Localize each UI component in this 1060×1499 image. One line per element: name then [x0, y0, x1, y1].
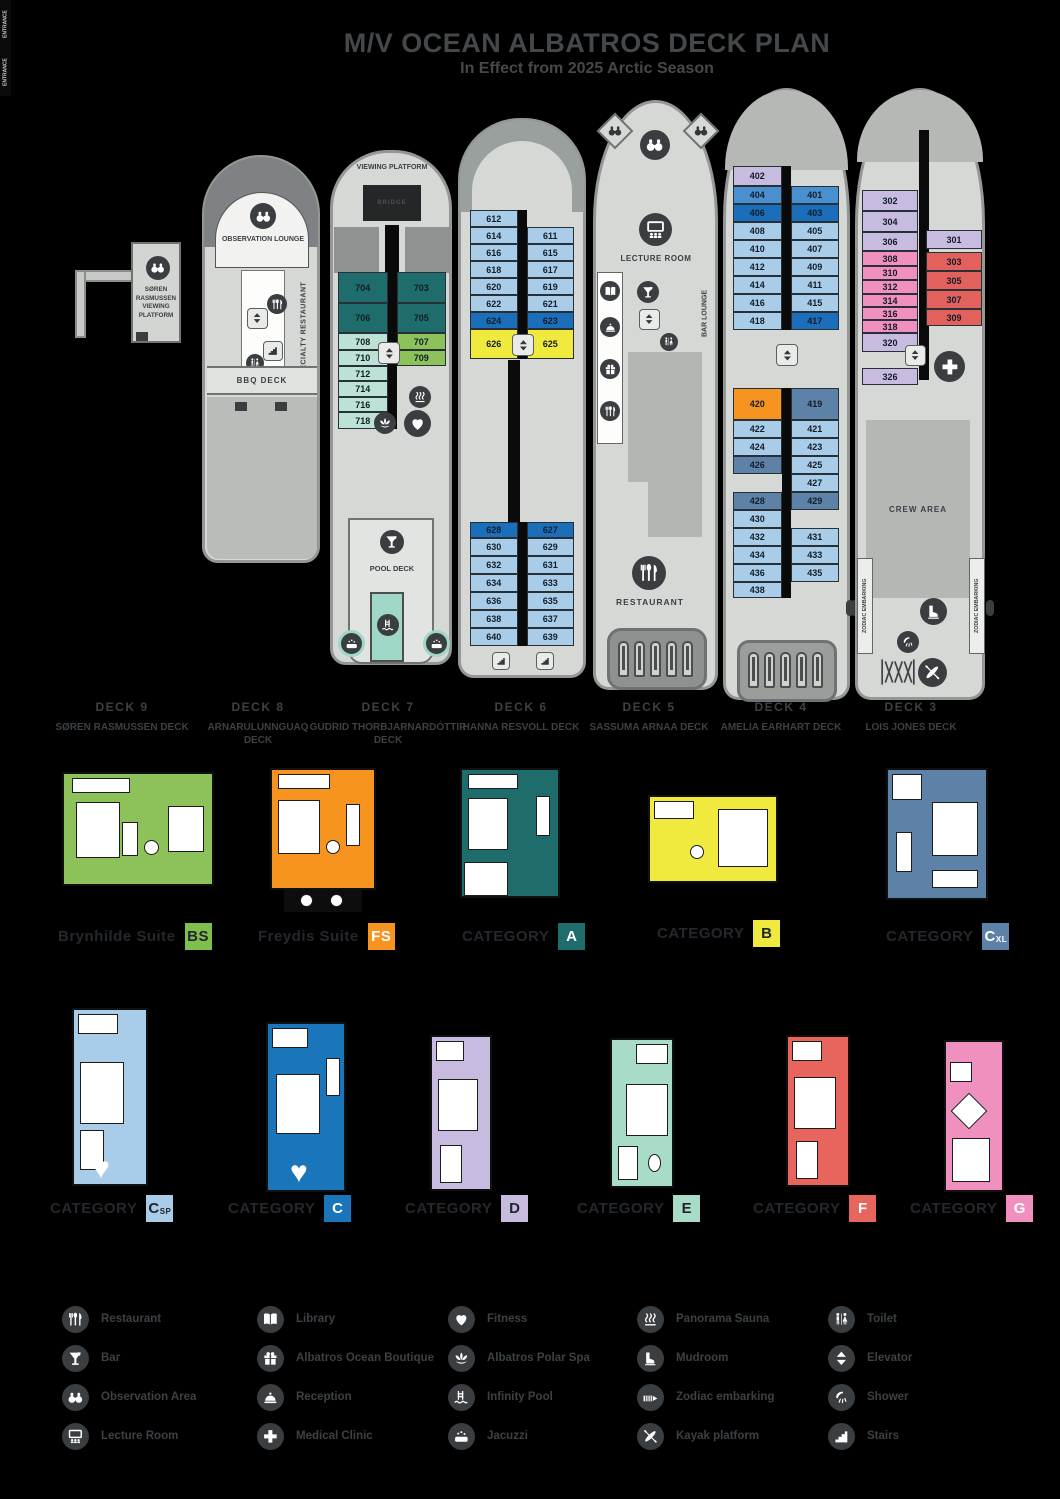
shower-icon: [897, 631, 919, 653]
legend-item-lecture: Lecture Room: [62, 1417, 196, 1456]
plan-brynhilde-suite: [62, 772, 214, 886]
cabin-706: 706: [338, 303, 388, 333]
elevator-icon: [905, 345, 926, 366]
corridor: [782, 528, 791, 546]
legend-item-sauna: Panorama Sauna: [637, 1300, 774, 1339]
legend-item-fitness: Fitness: [448, 1300, 590, 1339]
corridor: [782, 510, 791, 528]
cabin-row: 410407: [733, 240, 839, 258]
deck7-shoulder-left: [334, 227, 379, 273]
corridor: [782, 420, 791, 438]
gap: [926, 190, 982, 230]
cabin-314: 314: [862, 294, 918, 307]
cabin-row: 616615: [470, 244, 574, 261]
cabin-row: 406403: [733, 204, 839, 222]
legend-label: Bar: [101, 1352, 120, 1366]
legend-item-observation: Observation Area: [62, 1378, 196, 1417]
cabin-302: 302: [862, 190, 918, 211]
cabin-433: 433: [791, 546, 840, 564]
entrance-label: ENTRANCE: [0, 48, 11, 96]
legend-label: Panorama Sauna: [676, 1313, 769, 1327]
cabin-316: 316: [862, 307, 918, 320]
cabin-row: 706705: [338, 303, 446, 333]
cabin-423: 423: [791, 438, 840, 456]
badge-f: F: [849, 1195, 876, 1222]
corridor: [518, 210, 527, 227]
pool-icon: [448, 1384, 475, 1411]
cabin-633: 633: [527, 574, 575, 592]
category-e: CATEGORY E: [577, 1194, 700, 1222]
legend-label: Infinity Pool: [487, 1391, 553, 1405]
entrance-label: ENTRANCE: [0, 0, 11, 48]
boutique-icon: [257, 1345, 284, 1372]
toilet-icon: [828, 1306, 855, 1333]
deck7-pool: [370, 592, 404, 662]
category-d: CATEGORY D: [405, 1194, 528, 1222]
corridor: [388, 366, 397, 381]
corridor: [782, 456, 791, 474]
mudroom-icon: [637, 1345, 664, 1372]
legend-label: Shower: [867, 1391, 909, 1405]
cabin-615: 615: [527, 244, 575, 261]
cabin-709: 709: [397, 350, 447, 366]
restaurant-icon: [267, 294, 287, 314]
corridor: [518, 592, 527, 610]
cabin-row: 636635: [470, 592, 574, 610]
jacuzzi-icon: [448, 1423, 475, 1450]
library-icon: [600, 281, 620, 301]
cabin-403: 403: [791, 204, 840, 222]
cabin-304: 304: [862, 211, 918, 232]
cabin-712: 712: [338, 366, 388, 381]
pool-deck-label: POOL DECK: [358, 564, 426, 575]
badge-cxl: CXL: [982, 923, 1009, 950]
deck9-walkway-leg: [75, 270, 86, 338]
legend-item-shower: Shower: [828, 1378, 912, 1417]
plan-category-cxl: [886, 768, 988, 900]
corridor: [782, 546, 791, 564]
bar-icon: [62, 1345, 89, 1372]
cabin-619: 619: [527, 278, 575, 295]
corridor: [388, 272, 397, 303]
bridge-label: BRIDGE: [377, 200, 406, 206]
badge-csp: CSP: [146, 1195, 173, 1222]
zodiac-embarking-label: ZODIAC EMBARKING: [857, 558, 873, 654]
badge-e: E: [673, 1195, 700, 1222]
zodiac-boats: [618, 641, 693, 677]
legend-label: Albatros Polar Spa: [487, 1352, 590, 1366]
plan-category-b: [648, 795, 778, 883]
plan-category-a: [460, 768, 560, 898]
cabin-703: 703: [397, 272, 447, 303]
legend-item-jacuzzi: Jacuzzi: [448, 1417, 590, 1456]
restaurant-icon: [62, 1306, 89, 1333]
legend-item-pool: Infinity Pool: [448, 1378, 590, 1417]
badge-bs: BS: [185, 923, 212, 950]
corridor: [782, 204, 791, 222]
cabin-row: 436435: [733, 564, 839, 582]
deck6-corridor: [508, 360, 520, 522]
legend-item-mudroom: Mudroom: [637, 1339, 774, 1378]
cabin-326: 326: [862, 368, 918, 385]
elevator-icon: [828, 1345, 855, 1372]
cabin-714: 714: [338, 381, 388, 397]
deck9-stairs-tab: [136, 332, 148, 341]
cabin-row: 402: [733, 166, 839, 186]
cabin-624: 624: [470, 312, 518, 329]
legend-item-zodiac: Zodiac embarking: [637, 1378, 774, 1417]
legend-item-bar: Bar: [62, 1339, 196, 1378]
observation-icon: [640, 130, 670, 160]
stairs-icon: [263, 341, 283, 361]
deck8-stairs-tab: [235, 402, 247, 411]
legend-label: Reception: [296, 1391, 352, 1405]
spa-icon: [448, 1345, 475, 1372]
cabin-row: 404401: [733, 186, 839, 204]
cabin-716: 716: [338, 397, 388, 412]
bbq-deck-label: BBQ DECK: [237, 376, 288, 385]
cabin-303: 303: [926, 252, 982, 271]
cabin-422: 422: [733, 420, 782, 438]
elevator-icon: [512, 334, 534, 356]
cabin-412: 412: [733, 258, 782, 276]
legend-label: Mudroom: [676, 1352, 728, 1366]
shower-icon: [828, 1384, 855, 1411]
cabin-421: 421: [791, 420, 840, 438]
spa-icon: [374, 412, 396, 434]
cabin-307: 307: [926, 290, 982, 309]
legend-label: Lecture Room: [101, 1430, 178, 1444]
cabin-635: 635: [527, 592, 575, 610]
legend-column-2: LibraryAlbatros Ocean BoutiqueReceptionM…: [257, 1300, 434, 1456]
cabin-417: 417: [791, 312, 840, 330]
restaurant-icon: [632, 556, 666, 590]
deck3-crew-area: CREW AREA: [866, 420, 970, 598]
legend-label: Elevator: [867, 1352, 912, 1366]
cabin-row: 614611: [470, 227, 574, 244]
cabin-row: 638637: [470, 610, 574, 628]
corridor: [518, 244, 527, 261]
legend-label: Kayak platform: [676, 1430, 759, 1444]
cabin-634: 634: [470, 574, 518, 592]
legend-column-5: ToiletElevatorShowerStairs: [828, 1300, 912, 1456]
corridor: [518, 295, 527, 312]
cabin-630: 630: [470, 538, 518, 556]
cabin-row: 414411: [733, 276, 839, 294]
badge-b: B: [753, 920, 780, 947]
deck3-cabin-col-right: 301303305307309: [926, 190, 982, 326]
deck8-aft-deck: [207, 397, 317, 559]
legend-item-toilet: Toilet: [828, 1300, 912, 1339]
plan-category-c: ♥: [266, 1022, 346, 1192]
bar-icon: [380, 530, 404, 554]
badge-a: A: [558, 923, 585, 950]
cabin-405: 405: [791, 222, 840, 240]
cabin-427: 427: [791, 474, 840, 492]
corridor: [782, 222, 791, 240]
cabin-408: 408: [733, 222, 782, 240]
cabin-614: 614: [470, 227, 518, 244]
category-g: CATEGORY G: [910, 1194, 1033, 1222]
corridor: [518, 278, 527, 295]
cabin-row: 424423: [733, 438, 839, 456]
plan-freydis-balcony: [284, 890, 362, 912]
legend-label: Zodiac embarking: [676, 1391, 774, 1405]
cabin-row: 620619: [470, 278, 574, 295]
plan-category-d: [430, 1035, 492, 1191]
cabin-407: 407: [791, 240, 840, 258]
deck9-platform-label: SØREN RASMUSSEN VIEWING PLATFORM: [134, 286, 178, 320]
crew-area-label: CREW AREA: [889, 505, 947, 514]
corridor: [518, 261, 527, 278]
cabin-431: 431: [791, 528, 840, 546]
deck7-corridor: [385, 225, 399, 275]
cabin-empty: [397, 366, 447, 381]
corridor: [518, 538, 527, 556]
cabin-707: 707: [397, 333, 447, 350]
legend-item-stairs: Stairs: [828, 1417, 912, 1456]
cabin-row: 412409: [733, 258, 839, 276]
cabin-611: 611: [527, 227, 575, 244]
plan-category-csp: ♥: [72, 1008, 148, 1186]
legend-label: Restaurant: [101, 1313, 161, 1327]
lecture-icon: [62, 1423, 89, 1450]
corridor: [518, 610, 527, 628]
cabin-318: 318: [862, 320, 918, 333]
deck8-hull: OBSERVATION LOUNGE SPECIALTY RESTAURANT …: [202, 155, 320, 563]
category-f: CATEGORY F: [753, 1194, 876, 1222]
category-c: CATEGORY C: [228, 1194, 351, 1222]
legend-item-boutique: Albatros Ocean Boutique: [257, 1339, 434, 1378]
corridor: [782, 294, 791, 312]
cabin-612: 612: [470, 210, 518, 227]
cabin-638: 638: [470, 610, 518, 628]
deck4-bow: [725, 90, 848, 170]
corridor: [388, 381, 397, 397]
cabin-row: 624623: [470, 312, 574, 329]
cabin-310: 310: [862, 266, 918, 280]
cabin-632: 632: [470, 556, 518, 574]
cabin-616: 616: [470, 244, 518, 261]
medical-clinic-icon: [934, 351, 965, 382]
cabin-312: 312: [862, 280, 918, 294]
observation-icon: [62, 1384, 89, 1411]
bar-lounge-label: BAR LOUNGE: [697, 278, 713, 348]
observation-icon: [250, 203, 276, 229]
page-title: M/V OCEAN ALBATROS DECK PLAN: [237, 28, 937, 59]
legend-item-restaurant: Restaurant: [62, 1300, 196, 1339]
zodiac-icon: [637, 1384, 664, 1411]
pool-icon: [377, 614, 399, 636]
cabin-435: 435: [791, 564, 840, 582]
deck7-shoulder-right: [405, 227, 450, 273]
cabin-row: 630629: [470, 538, 574, 556]
deck8-stairs-tab: [275, 402, 287, 411]
corridor: [518, 628, 527, 646]
boutique-icon: [600, 359, 620, 379]
corridor: [782, 438, 791, 456]
cabin-empty: [791, 582, 840, 598]
cabin-row: 430: [733, 510, 839, 528]
corridor: [518, 227, 527, 244]
jacuzzi-icon: [423, 630, 450, 657]
cabin-row: 428429: [733, 492, 839, 510]
cabin-row: 416415: [733, 294, 839, 312]
cabin-row: 422421: [733, 420, 839, 438]
cabin-row: 618617: [470, 261, 574, 278]
lecture-room-icon: [639, 213, 672, 246]
plan-category-f: [786, 1035, 850, 1187]
category-b: CATEGORY B: [657, 919, 780, 947]
fitness-icon: [448, 1306, 475, 1333]
corridor: [782, 186, 791, 204]
cabin-621: 621: [527, 295, 575, 312]
deck5-galley-aft: [648, 482, 702, 537]
cabin-426: 426: [733, 456, 782, 474]
legend-label: Medical Clinic: [296, 1430, 373, 1444]
category-a: CATEGORY A: [462, 922, 585, 950]
cabin-617: 617: [527, 261, 575, 278]
cabin-empty: [733, 474, 782, 492]
cabin-631: 631: [527, 556, 575, 574]
kayak-rack: [879, 656, 917, 688]
cabin-429: 429: [791, 492, 840, 510]
deck4-cabin-grid-top: 4024044014064034084054104074124094144114…: [733, 166, 839, 330]
lecture-room-label: LECTURE ROOM: [611, 254, 701, 263]
legend-item-kayak: Kayak platform: [637, 1417, 774, 1456]
legend-item-spa: Albatros Polar Spa: [448, 1339, 590, 1378]
cabin-623: 623: [527, 312, 575, 329]
cabin-419: 419: [791, 388, 840, 420]
deck9-platform: SØREN RASMUSSEN VIEWING PLATFORM: [131, 242, 181, 343]
viewing-platform-label: VIEWING PLATFORM: [353, 163, 431, 172]
cabin-410: 410: [733, 240, 782, 258]
stairs-icon: [536, 652, 554, 670]
corridor: [782, 240, 791, 258]
cabin-402: 402: [733, 166, 782, 186]
plan-freydis-suite: [270, 768, 376, 890]
cabin-637: 637: [527, 610, 575, 628]
badge-g: G: [1006, 1195, 1033, 1222]
zodiac-marker-icon: [986, 600, 994, 616]
cabin-620: 620: [470, 278, 518, 295]
category-bs: Brynhilde Suite BS: [58, 922, 212, 950]
corridor: [518, 574, 527, 592]
cabin-411: 411: [791, 276, 840, 294]
reception-icon: [257, 1384, 284, 1411]
sauna-icon: [637, 1306, 664, 1333]
cabin-418: 418: [733, 312, 782, 330]
cabin-416: 416: [733, 294, 782, 312]
deck3-label: DECK 3LOIS JONES DECK: [826, 700, 996, 734]
restaurant-label: RESTAURANT: [606, 597, 694, 607]
cabin-row: 622621: [470, 295, 574, 312]
plan-category-g: [944, 1040, 1004, 1192]
legend-item-reception: Reception: [257, 1378, 434, 1417]
legend-label: Stairs: [867, 1430, 899, 1444]
bar-icon: [637, 281, 659, 303]
badge-fs: FS: [368, 923, 395, 950]
legend-label: Fitness: [487, 1313, 527, 1327]
cabin-row: 634633: [470, 574, 574, 592]
sauna-icon: [409, 386, 431, 408]
category-cxl: CATEGORY CXL: [886, 922, 1009, 950]
legend-item-elevator: Elevator: [828, 1339, 912, 1378]
category-fs: Freydis Suite FS: [258, 922, 395, 950]
cabin-401: 401: [791, 186, 840, 204]
legend-item-library: Library: [257, 1300, 434, 1339]
zodiac-embarking-label: ZODIAC EMBARKING: [969, 558, 985, 654]
legend-label: Observation Area: [101, 1391, 196, 1405]
cabin-row: 712: [338, 366, 446, 381]
cabin-420: 420: [733, 388, 782, 420]
deck4-cabin-grid-mid: 4204194224214244234264254274284294304324…: [733, 388, 839, 598]
corridor: [518, 522, 527, 538]
cabin-705: 705: [397, 303, 447, 333]
legend-column-1: RestaurantBarObservation AreaLecture Roo…: [62, 1300, 196, 1456]
fitness-icon: [404, 410, 431, 437]
toilet-icon: [660, 333, 678, 351]
cabin-629: 629: [527, 538, 575, 556]
elevator-icon: [247, 308, 268, 329]
cabin-628: 628: [470, 522, 518, 538]
zodiac-marker-icon: [846, 600, 854, 616]
cabin-636: 636: [470, 592, 518, 610]
cabin-409: 409: [791, 258, 840, 276]
observation-lounge-label: OBSERVATION LOUNGE: [220, 235, 306, 244]
corridor: [782, 474, 791, 492]
corridor: [388, 397, 397, 412]
observation-icon: [146, 256, 170, 280]
cabin-308: 308: [862, 251, 918, 266]
category-csp: CATEGORY CSP: [50, 1194, 173, 1222]
legend-item-medical: Medical Clinic: [257, 1417, 434, 1456]
deck5-galley: [628, 352, 702, 482]
cabin-415: 415: [791, 294, 840, 312]
medical-icon: [257, 1423, 284, 1450]
cabin-618: 618: [470, 261, 518, 278]
legend-label: Library: [296, 1313, 335, 1327]
corridor: [782, 582, 791, 598]
cabin-704: 704: [338, 272, 388, 303]
kayak-platform-icon: [918, 658, 947, 687]
jacuzzi-icon: [338, 630, 365, 657]
cabin-row: 432431: [733, 528, 839, 546]
corridor: [782, 166, 791, 186]
cabin-row: 612: [470, 210, 574, 227]
deck8-bbq-deck: BBQ DECK: [207, 366, 317, 395]
cabin-row: 628627: [470, 522, 574, 538]
cabin-622: 622: [470, 295, 518, 312]
cabin-309: 309: [926, 309, 982, 326]
legend-column-4: Panorama SaunaMudroomZodiac embarkingKay…: [637, 1300, 774, 1456]
legend-label: Albatros Ocean Boutique: [296, 1352, 434, 1366]
cabin-row: 434433: [733, 546, 839, 564]
corridor: [782, 388, 791, 420]
deck-plan-page: { "title": "M/V OCEAN ALBATROS DECK PLAN…: [0, 0, 1060, 1499]
page-subtitle: In Effect from 2025 Arctic Season: [237, 60, 937, 78]
legend-label: Jacuzzi: [487, 1430, 528, 1444]
elevator-icon: [378, 342, 400, 364]
elevator-icon: [776, 344, 798, 366]
cabin-305: 305: [926, 271, 982, 290]
cabin-626: 626: [470, 329, 518, 359]
cabin-627: 627: [527, 522, 575, 538]
corridor: [518, 556, 527, 574]
cabin-row: 408405: [733, 222, 839, 240]
cabin-640: 640: [470, 628, 518, 646]
cabin-432: 432: [733, 528, 782, 546]
